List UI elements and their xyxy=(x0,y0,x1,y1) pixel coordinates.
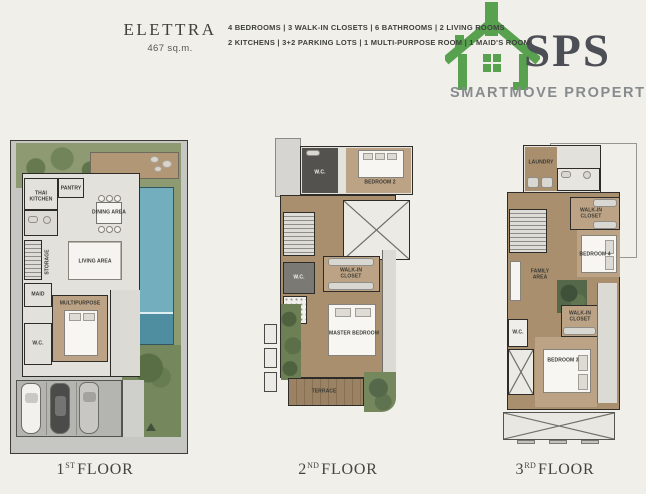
spec-line-1: 4 BEDROOMS | 3 WALK-IN CLOSETS | 6 BATHR… xyxy=(228,20,528,35)
car-windshield xyxy=(83,392,96,402)
floor-ordinal: ST xyxy=(65,461,75,470)
balcony-right-3f xyxy=(597,283,617,403)
deck-stone xyxy=(154,166,162,172)
car-gray xyxy=(79,382,99,434)
entry-walk xyxy=(122,380,144,437)
bedroom3-bed xyxy=(543,349,591,393)
wardrobe xyxy=(563,327,596,335)
floor-ordinal: RD xyxy=(524,461,536,470)
dining-chair xyxy=(114,195,121,202)
roof-tab xyxy=(581,440,599,444)
void-open-to-below xyxy=(343,200,410,260)
room-label-dining: DINING AREA xyxy=(92,210,126,216)
bed-pillow xyxy=(375,153,385,160)
wardrobe xyxy=(593,199,617,207)
roof-band-bottom xyxy=(503,412,615,440)
floorplan-1st: THAI KITCHEN PANTRY DINING AREA LIVING A… xyxy=(10,140,188,454)
project-title: ELETTRA xyxy=(122,20,218,40)
floor-label-1: 1STFLOOR xyxy=(35,461,155,479)
dining-chair xyxy=(114,226,121,233)
floor-word: FLOOR xyxy=(77,461,133,478)
deck-stone xyxy=(150,156,159,163)
void-3f xyxy=(508,349,534,395)
stairs-2f xyxy=(283,212,315,256)
bath-fixture xyxy=(583,171,591,179)
room-label-maid: MAID xyxy=(31,292,44,298)
green-strip-left xyxy=(281,304,301,380)
void-x-mark xyxy=(509,350,533,394)
bedroom2-bed xyxy=(358,150,404,178)
parking-divider xyxy=(76,382,77,435)
bed-pillow xyxy=(578,355,588,371)
floor-ordinal: ND xyxy=(307,461,319,470)
bed-pillow xyxy=(363,153,373,160)
wardrobe xyxy=(593,221,617,229)
brand-tagline: SMARTMOVE PROPERTY xyxy=(450,85,646,101)
room-label-laundry: LAUNDRY xyxy=(529,160,554,166)
bed-pillow xyxy=(83,313,95,321)
garden-marker xyxy=(146,423,156,431)
floor-label-2: 2NDFLOOR xyxy=(278,461,398,479)
green-bottom xyxy=(364,372,396,412)
bath-fixture xyxy=(561,171,571,178)
room-label-thai-kitchen: THAI KITCHEN xyxy=(30,191,53,203)
project-area: 467 sq.m. xyxy=(122,43,218,54)
car-windshield xyxy=(25,393,38,403)
ac-unit xyxy=(264,324,277,344)
dryer xyxy=(541,177,553,188)
wc-fixture xyxy=(306,150,320,156)
room-label-bedroom3: BEDROOM 3 xyxy=(547,358,578,364)
wardrobe xyxy=(328,282,374,290)
multipurpose-bed xyxy=(64,310,98,356)
floor-number: 2 xyxy=(298,461,307,478)
washer xyxy=(527,177,539,188)
floorplan-3rd: LAUNDRY WALK-IN CLOSET BEDROOM 4 FAMILY … xyxy=(483,133,640,455)
room-label-family: FAMILY AREA xyxy=(531,269,549,281)
bed-pillow xyxy=(387,153,397,160)
wardrobe xyxy=(328,258,374,266)
floor-word: FLOOR xyxy=(538,461,594,478)
dining-chair xyxy=(106,226,113,233)
car-roof xyxy=(55,396,66,416)
family-sofa xyxy=(510,261,521,301)
room-label-bedroom4: BEDROOM 4 xyxy=(579,252,610,258)
floor-number: 1 xyxy=(56,461,65,478)
dining-chair xyxy=(98,195,105,202)
room-label-pantry: PANTRY xyxy=(61,186,82,192)
deck-stone xyxy=(162,160,172,168)
floorplan-2nd: W.C. BEDROOM 2 W.C. WALK-IN CLOSET MASTE… xyxy=(258,138,416,450)
brand-name: SPS xyxy=(524,28,611,75)
bed-pillow xyxy=(605,256,614,270)
roof-area-gray xyxy=(275,138,301,197)
room-label-bedroom2: BEDROOM 2 xyxy=(364,180,395,186)
side-walkway xyxy=(110,290,140,376)
room-label-multipurpose: MULTIPURPOSE xyxy=(60,301,101,307)
roof-tab xyxy=(549,440,567,444)
room-label-master: MASTER BEDROOM xyxy=(329,331,379,337)
parking-divider xyxy=(46,382,47,435)
void-x-mark xyxy=(344,201,409,259)
stairs-3f xyxy=(509,209,547,253)
room-label-wc-3f: W.C. xyxy=(512,330,523,336)
floor-label-3: 3RDFLOOR xyxy=(495,461,615,479)
balcony-right xyxy=(382,250,396,376)
car-white xyxy=(21,383,41,434)
bath-fixture xyxy=(43,216,51,224)
floor-word: FLOOR xyxy=(321,461,377,478)
bed-pillow xyxy=(355,308,371,317)
room-label-walkin-2f: WALK-IN CLOSET xyxy=(340,268,362,280)
room-label-living: LIVING AREA xyxy=(78,259,111,265)
dining-chair xyxy=(106,195,113,202)
roof-x-mark xyxy=(504,413,614,439)
bed-pillow xyxy=(335,308,351,317)
floor-number: 3 xyxy=(516,461,525,478)
car-dark xyxy=(50,383,70,434)
ac-unit xyxy=(264,348,277,368)
room-label-wc-top: W.C. xyxy=(314,170,325,176)
spec-line-2: 2 KITCHENS | 3+2 PARKING LOTS | 1 MULTI-… xyxy=(228,35,528,50)
stairs-1f xyxy=(24,240,42,280)
room-label-wc-1f: W.C. xyxy=(32,341,43,347)
room-label-wc-2f: W.C. xyxy=(293,275,304,281)
ac-unit xyxy=(264,372,277,392)
bed-pillow xyxy=(578,374,588,390)
dining-chair xyxy=(98,226,105,233)
room-bath-1f xyxy=(24,210,58,236)
pool-steps xyxy=(139,312,173,344)
roof-tab xyxy=(517,440,535,444)
bath-fixture xyxy=(28,216,38,223)
room-label-storage: STORAGE xyxy=(45,249,51,274)
room-label-walkin-bottom-3f: WALK-IN CLOSET xyxy=(569,311,591,323)
spec-list: 4 BEDROOMS | 3 WALK-IN CLOSETS | 6 BATHR… xyxy=(228,20,528,50)
room-label-walkin-top-3f: WALK-IN CLOSET xyxy=(580,208,602,220)
project-title-block: ELETTRA 467 sq.m. xyxy=(122,20,218,54)
room-label-terrace: TERRACE xyxy=(312,389,337,395)
bed-pillow xyxy=(69,313,81,321)
